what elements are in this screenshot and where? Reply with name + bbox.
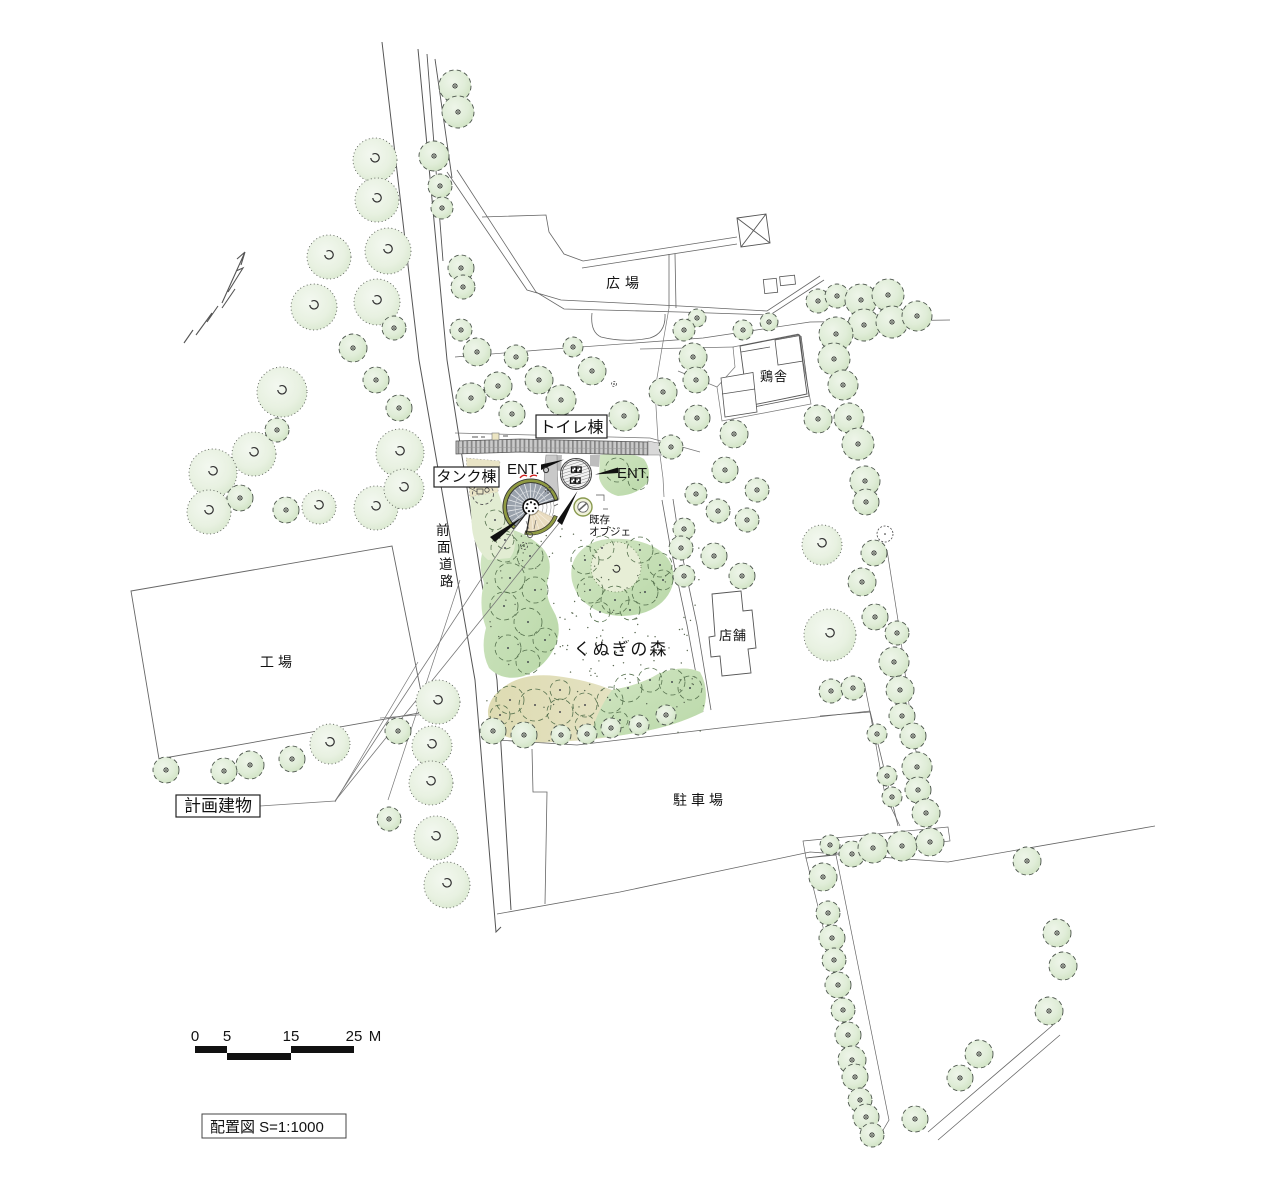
svg-text:鶏舎: 鶏舎 <box>760 369 788 384</box>
svg-text:15: 15 <box>283 1028 300 1045</box>
svg-text:広場: 広場 <box>606 275 644 291</box>
svg-text:道: 道 <box>439 557 453 572</box>
svg-text:5: 5 <box>223 1028 231 1045</box>
svg-text:ENT.: ENT. <box>617 465 650 482</box>
svg-text:オブジェ: オブジェ <box>589 525 631 538</box>
svg-text:M: M <box>369 1028 382 1045</box>
svg-text:ENT.: ENT. <box>507 461 540 478</box>
svg-text:トイレ棟: トイレ棟 <box>539 419 603 437</box>
svg-text:0: 0 <box>191 1028 199 1045</box>
svg-text:路: 路 <box>440 574 454 589</box>
svg-text:配置図 S=1:1000: 配置図 S=1:1000 <box>210 1119 324 1136</box>
svg-text:店舗: 店舗 <box>719 628 747 643</box>
svg-text:駐車場: 駐車場 <box>673 792 727 808</box>
svg-text:前: 前 <box>436 522 450 538</box>
svg-text:計画建物: 計画建物 <box>184 797 252 816</box>
svg-text:面: 面 <box>437 540 451 555</box>
svg-text:25: 25 <box>346 1028 363 1045</box>
svg-text:タンク棟: タンク棟 <box>436 469 496 486</box>
svg-text:くぬぎの森: くぬぎの森 <box>574 640 669 659</box>
svg-text:既存: 既存 <box>589 513 610 526</box>
svg-text:工場: 工場 <box>260 654 296 670</box>
